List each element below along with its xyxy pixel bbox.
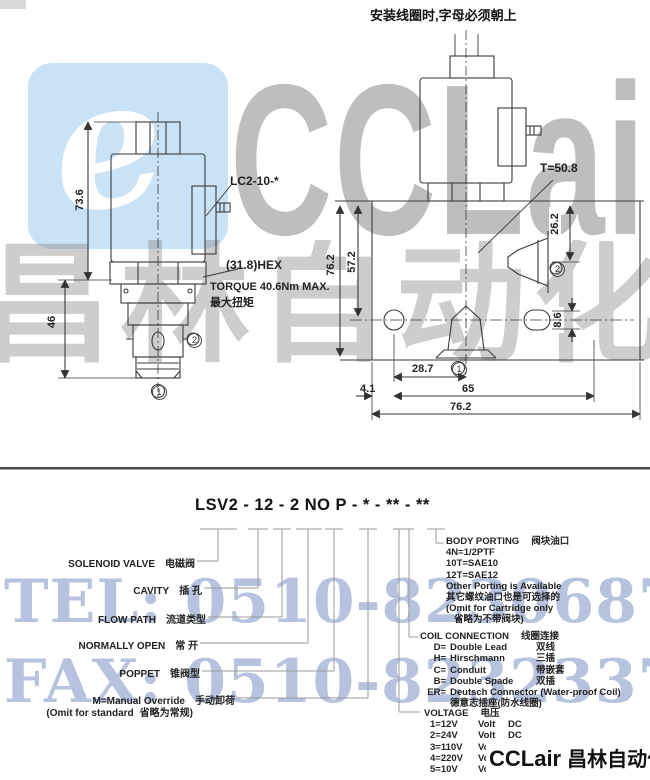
datasheet-page: e CCLair 昌林自动化 TEL: 0510-82306871 FAX: 0… [0, 0, 650, 780]
cclair-logo: CCLair昌林自动化 [486, 742, 650, 773]
code-leader-lines [197, 529, 445, 712]
technical-drawing [0, 0, 650, 780]
logo-company-cn: 昌林自动化 [567, 749, 650, 771]
section-divider [0, 467, 650, 470]
logo-brand: CCLair [489, 746, 561, 771]
